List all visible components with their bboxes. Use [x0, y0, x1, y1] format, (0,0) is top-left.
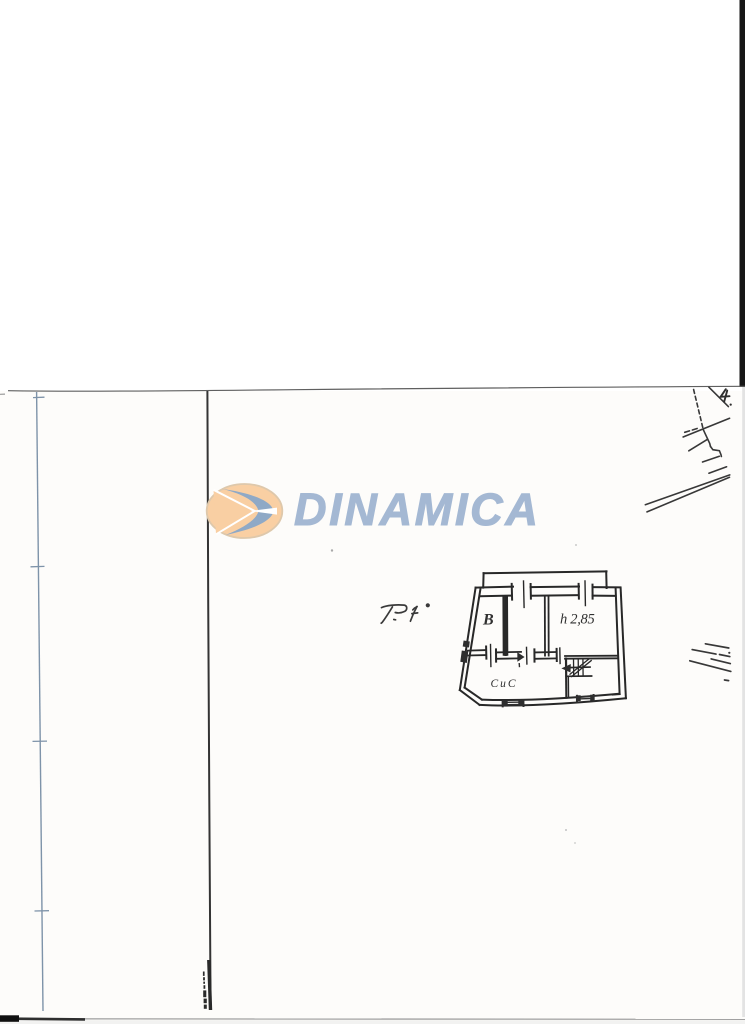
svg-text:B: B: [482, 612, 494, 629]
svg-text:DINAMICA: DINAMICA: [294, 484, 541, 535]
svg-text:CuC: CuC: [491, 678, 518, 690]
svg-text:h 2,85: h 2,85: [560, 612, 595, 628]
